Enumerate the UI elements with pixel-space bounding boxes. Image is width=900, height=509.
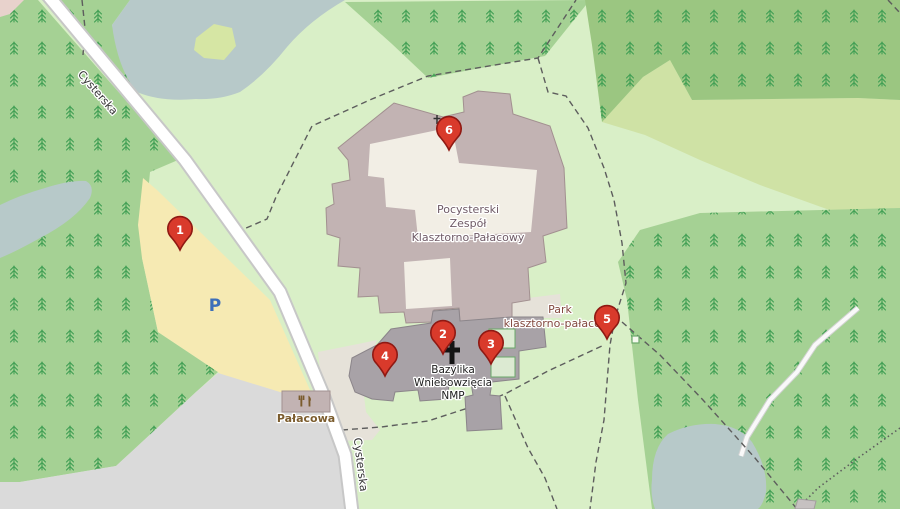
basilica-label-line1: Bazylika	[431, 364, 475, 376]
park-label-line1: Park	[548, 303, 572, 316]
monastery-label-line2: Zespół	[450, 217, 488, 230]
restaurant-label: Pałacowa	[277, 412, 335, 425]
parking-icon: P	[209, 296, 221, 316]
monastery-label-line1: Pocysterski	[437, 203, 499, 216]
basilica-label-line2: Wniebowzięcia	[414, 377, 492, 389]
monastery-label-line3: Klasztorno-Pałacowy	[412, 231, 525, 244]
map-viewport[interactable]: Cysterska Cysterska P Pocysterski Zespół…	[0, 0, 900, 509]
marker-number: 4	[381, 349, 389, 363]
marker-number: 5	[603, 312, 611, 326]
monastery-courtyard-south	[404, 258, 452, 309]
small-building	[795, 499, 816, 509]
marker-number: 1	[176, 223, 184, 237]
basilica-label-line3: NMP	[441, 390, 464, 402]
cloister-garden	[491, 357, 515, 377]
marker-number: 2	[439, 327, 447, 341]
marker-number: 3	[487, 337, 495, 351]
restaurant-building	[282, 391, 330, 412]
map-canvas[interactable]: Cysterska Cysterska P Pocysterski Zespół…	[0, 0, 900, 509]
marker-number: 6	[445, 123, 453, 137]
guidepost-marker	[632, 336, 639, 343]
